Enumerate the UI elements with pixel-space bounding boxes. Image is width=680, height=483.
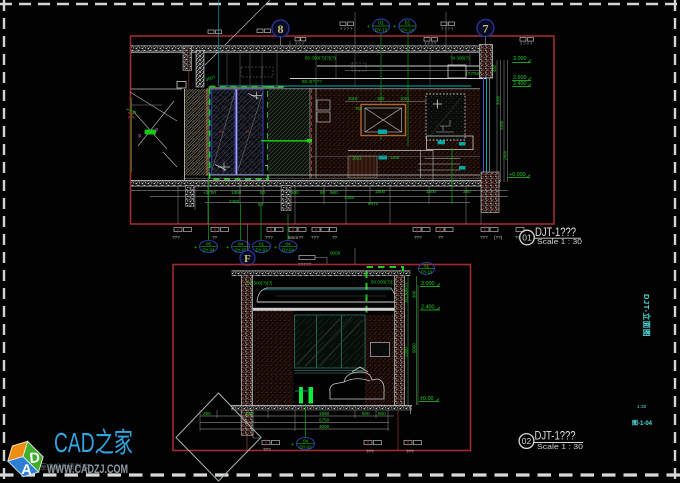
- svg-text:2400: 2400: [499, 120, 504, 130]
- svg-text:300: 300: [412, 290, 417, 298]
- svg-text:DY-04: DY-04: [282, 248, 295, 253]
- svg-text:DY-03: DY-03: [299, 445, 312, 450]
- svg-text:380: 380: [463, 189, 471, 194]
- svg-text:2.400: 2.400: [421, 305, 435, 311]
- svg-text:1400: 1400: [426, 189, 437, 194]
- svg-text:3.000: 3.000: [421, 281, 435, 287]
- svg-text:+0.000: +0.000: [509, 172, 526, 178]
- svg-text:4000: 4000: [319, 424, 330, 429]
- svg-text:DY-15: DY-15: [375, 28, 388, 33]
- svg-text:750: 750: [355, 106, 363, 111]
- svg-text:DY-03: DY-03: [255, 248, 268, 253]
- svg-text:WWW.CADZJ.COM: WWW.CADZJ.COM: [47, 462, 128, 476]
- svg-text:??: ??: [438, 235, 444, 240]
- svg-text:01: 01: [522, 233, 532, 243]
- svg-text:? ? ? ?: ? ? ? ?: [520, 41, 533, 46]
- svg-text:???: ???: [480, 235, 488, 240]
- svg-text:01: 01: [424, 264, 430, 269]
- svg-text:??: ??: [332, 235, 338, 240]
- svg-text:DJT-1???: DJT-1???: [535, 227, 576, 239]
- svg-text:01: 01: [405, 21, 411, 27]
- svg-text:DY-04: DY-04: [202, 248, 215, 253]
- svg-text:DY-14: DY-14: [401, 28, 414, 33]
- svg-text:Scale 1 : 30: Scale 1 : 30: [537, 239, 582, 246]
- svg-text:500: 500: [291, 190, 299, 195]
- svg-text:图-1-04: 图-1-04: [632, 419, 653, 427]
- svg-text:??: ??: [212, 235, 218, 240]
- svg-text:DY-10: DY-10: [421, 270, 433, 275]
- svg-text:2400: 2400: [503, 150, 508, 160]
- svg-text:+: +: [367, 24, 370, 30]
- svg-text:???: ???: [414, 235, 422, 240]
- svg-text:8: 8: [278, 22, 284, 36]
- svg-text:A: A: [21, 462, 33, 479]
- svg-text:50.300(?)(?)(?): 50.300(?)(?)(?): [305, 56, 336, 61]
- svg-text:3000: 3000: [496, 95, 501, 105]
- svg-text:250: 250: [203, 411, 211, 416]
- svg-text:???: ???: [265, 235, 273, 240]
- svg-text:DJT-立面图: DJT-立面图: [642, 294, 652, 337]
- svg-text:???: ???: [311, 235, 319, 240]
- svg-text:450: 450: [492, 64, 497, 72]
- svg-text:50.300(?): 50.300(?): [404, 283, 409, 302]
- svg-text:???: ???: [172, 235, 180, 240]
- svg-text:7: 7: [483, 22, 489, 36]
- svg-text:100: 100: [377, 96, 385, 101]
- svg-text:Scale 1 : 30: Scale 1 : 30: [537, 444, 583, 451]
- svg-text:50: 50: [320, 190, 326, 195]
- svg-text:±0.00: ±0.00: [420, 396, 433, 402]
- svg-text:7360: 7360: [344, 195, 355, 200]
- svg-text:1300: 1300: [231, 190, 242, 195]
- svg-text:3.000: 3.000: [513, 56, 527, 62]
- svg-text:5000: 5000: [412, 343, 417, 353]
- svg-text:600: 600: [362, 411, 370, 416]
- svg-text:(??): (??): [494, 235, 503, 240]
- svg-text:1200: 1200: [390, 155, 400, 160]
- svg-text:5mm??: 5mm??: [288, 235, 304, 240]
- svg-text:960: 960: [330, 190, 338, 195]
- svg-text:1010: 1010: [348, 96, 358, 101]
- svg-text:+: +: [393, 24, 396, 30]
- svg-text:1021: 1021: [400, 96, 410, 101]
- svg-text:1:30: 1:30: [637, 404, 647, 410]
- svg-text:? ? ? ?: ? ? ? ?: [441, 26, 454, 31]
- svg-text:2.400: 2.400: [513, 81, 527, 87]
- svg-text:860: 860: [246, 411, 254, 416]
- svg-text:F: F: [244, 253, 251, 265]
- svg-text:???: ???: [263, 447, 271, 452]
- svg-text:1500: 1500: [375, 189, 386, 194]
- svg-text:02: 02: [522, 436, 532, 446]
- svg-text:+2700: +2700: [203, 190, 216, 195]
- svg-text:0000: 0000: [330, 251, 341, 256]
- svg-text:5750: 5750: [319, 418, 330, 423]
- svg-text:50.3(?)??: 50.3(?)??: [302, 79, 322, 84]
- svg-text:+: +: [226, 245, 229, 251]
- svg-text:1960: 1960: [319, 411, 330, 416]
- svg-text:? ? ? ?: ? ? ? ?: [340, 26, 353, 31]
- svg-text:50.300(?)(?): 50.300(?)(?): [371, 280, 397, 285]
- svg-text:DJT-1???: DJT-1???: [535, 431, 576, 443]
- svg-text:2350: 2350: [404, 347, 409, 357]
- svg-text:?4.300(?): ?4.300(?): [450, 56, 470, 61]
- svg-text:+: +: [194, 245, 197, 251]
- svg-text:+: +: [291, 442, 294, 448]
- svg-text:5470: 5470: [368, 201, 379, 206]
- svg-text:CAD之家: CAD之家: [54, 427, 133, 458]
- svg-text:01: 01: [378, 21, 384, 27]
- svg-text:800: 800: [378, 411, 386, 416]
- svg-text:???: ???: [406, 449, 414, 454]
- svg-text:50.300(?)(?): 50.300(?)(?): [247, 281, 273, 286]
- svg-text:???: ???: [366, 449, 374, 454]
- svg-text:7450: 7450: [229, 199, 240, 204]
- svg-text:50: 50: [260, 190, 266, 195]
- svg-text:+: +: [274, 245, 277, 251]
